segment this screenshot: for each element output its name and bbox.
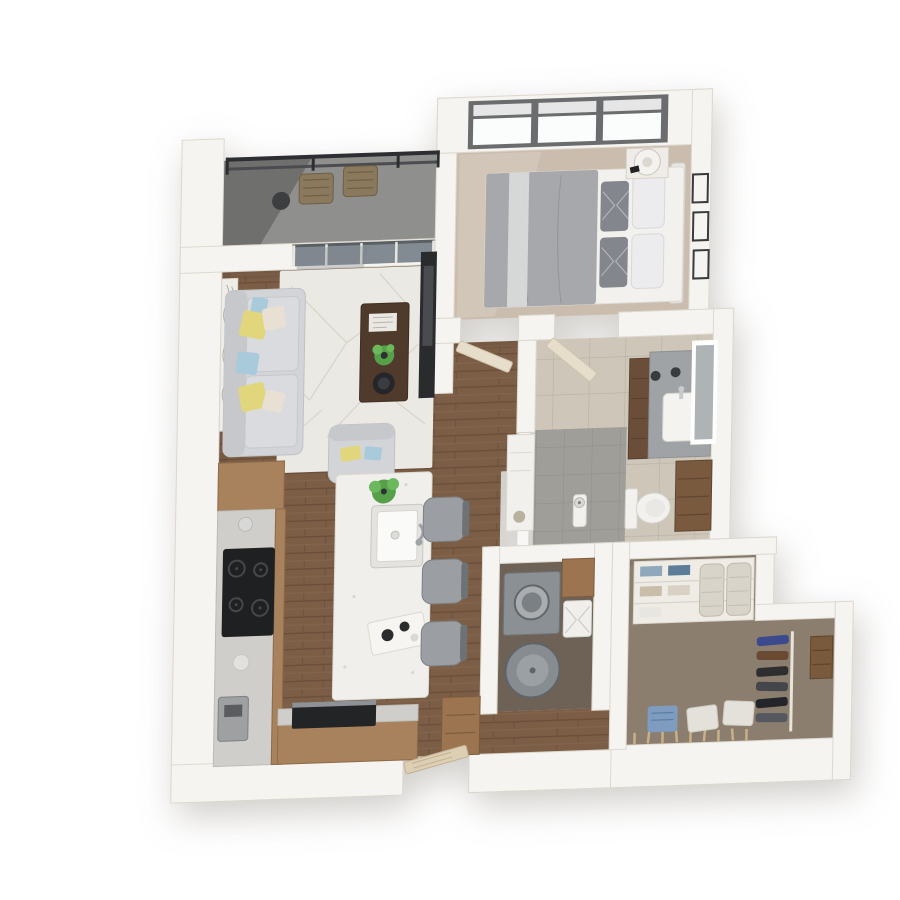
- picture-frames: [691, 174, 710, 279]
- floorplan-stage: [0, 0, 900, 900]
- armchair-pillow-blue: [364, 446, 382, 460]
- lit-mirror: [690, 340, 718, 445]
- bar-stools: [421, 496, 470, 666]
- storage-basket-1: [699, 564, 724, 617]
- storage-basket-2: [726, 563, 751, 616]
- pantry-cabinet: [506, 434, 535, 531]
- washer-front-load: [503, 571, 560, 635]
- wall-laundry-left: [480, 546, 500, 714]
- vanity-drawers: [628, 358, 650, 459]
- wall-bottom-closet: [610, 737, 851, 787]
- wall-laundry-closet: [609, 542, 630, 750]
- folded-clothes-3: [639, 607, 661, 618]
- shower-tile-floor: [533, 427, 627, 545]
- wall-laundry-right: [592, 543, 613, 711]
- throw-blanket: [507, 172, 529, 307]
- wall-south-seg1: [433, 318, 460, 344]
- wall-south-seg2: [518, 314, 554, 340]
- double-bed: [484, 163, 685, 310]
- coffee-machine: [218, 696, 249, 741]
- fridge-cabinet: [218, 461, 285, 511]
- floorplan-render: [0, 0, 900, 900]
- wall-bottom-entry: [469, 750, 616, 793]
- blue-bin: [647, 705, 677, 732]
- pillow-accent-2: [599, 237, 628, 288]
- kettle: [238, 517, 252, 532]
- pillow-white-2: [631, 234, 664, 289]
- storage-box-1: [687, 704, 719, 732]
- cooktop: [222, 547, 276, 637]
- wall-closet-step: [755, 602, 835, 621]
- closet-wood-shelf: [810, 636, 833, 679]
- sofa: [223, 288, 306, 457]
- duvet: [484, 170, 598, 308]
- wall-closet-right: [832, 601, 853, 780]
- coffee-table: [359, 302, 409, 402]
- folded-clothes-2: [640, 586, 662, 597]
- folded-clothes-4: [668, 565, 690, 576]
- pillow-blue-1: [235, 351, 260, 375]
- pillow-white-1: [632, 173, 665, 228]
- closet-shelving-unit: [633, 558, 754, 624]
- apartment-plan: [171, 84, 863, 804]
- nightstand: [626, 147, 668, 179]
- storage-box-2: [723, 701, 755, 726]
- shower-fixture: [573, 494, 587, 526]
- laundry-hamper: [563, 600, 592, 637]
- pillow-beige-1: [262, 305, 287, 331]
- folded-clothes-5: [668, 585, 690, 596]
- folded-clothes-1: [640, 566, 662, 577]
- bedroom-window: [468, 94, 669, 149]
- wall-hall-bath: [517, 340, 537, 433]
- linen-cabinet: [675, 460, 712, 531]
- bowl: [233, 654, 249, 671]
- island-sink: [371, 504, 424, 568]
- laundry-cabinet: [562, 558, 595, 597]
- black-appliance: [292, 700, 376, 729]
- pillow-accent-1: [600, 181, 629, 232]
- wall-tv: [418, 251, 437, 398]
